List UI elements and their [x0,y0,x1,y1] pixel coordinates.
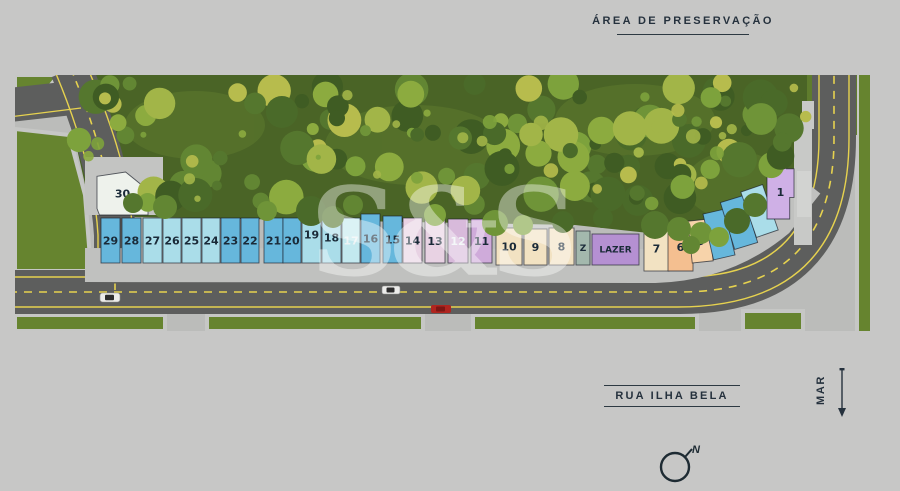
tree [727,124,737,134]
tree [343,195,363,215]
lot-1-number: 1 [777,186,785,199]
street-label: RUA ILHA BELA [592,385,752,407]
tree [682,236,700,254]
lot-19-number: 19 [304,229,319,242]
lot-27: 27 [143,218,162,263]
lot-lazer: LAZER [592,234,639,265]
tree [212,181,222,191]
sea-label: MAR [799,362,859,422]
tree [322,206,344,228]
lot-26: 26 [163,218,181,263]
lot-17: 17 [342,218,360,263]
site-plan: 3029282726252423222120191817161514131211… [15,75,870,331]
tree [613,111,647,145]
tree [587,155,606,174]
tree [563,143,578,158]
tree [483,115,497,129]
lot-21-number: 21 [266,235,281,248]
lot-12: 12 [448,219,468,263]
tree [604,153,624,173]
car-white-1 [100,293,120,302]
preservation-area-underline [617,34,749,35]
lot-26-number: 26 [164,235,180,248]
site-plan-page: { "labels": { "preservation": "ÁREA DE P… [0,0,900,491]
tree [257,201,277,221]
tree [523,177,558,212]
tree [630,186,645,201]
tree [671,104,684,117]
tree [295,94,309,108]
tree [620,167,637,184]
lot-22-number: 22 [242,235,257,248]
tree [99,92,111,104]
tree [516,75,543,102]
street-label-bottomline [604,406,740,407]
lot-10-number: 10 [501,241,517,254]
lot-9: 9 [524,229,547,265]
lot-27-number: 27 [145,235,160,248]
lot-20-number: 20 [284,235,300,248]
tree [123,77,137,91]
tree [534,116,549,131]
tree [140,132,146,138]
tree [213,151,228,166]
tree [641,211,669,239]
tree [360,125,371,136]
tree [307,144,337,174]
tree [560,171,590,201]
tree [244,174,260,190]
lot-28: 28 [122,218,141,263]
tree [572,90,587,105]
sea-arrow-icon [833,364,851,422]
lot-15-number: 15 [385,234,400,247]
tree [773,133,792,152]
tree [513,215,533,235]
tree [671,175,695,199]
tree [296,196,326,226]
tree [790,84,799,93]
tree [477,136,488,147]
tree [424,110,431,117]
lot-9-number: 9 [532,241,540,254]
tree [342,90,352,100]
tree [184,173,195,184]
tree [110,114,127,131]
lot-20: 20 [283,218,301,263]
lot-29-number: 29 [103,235,118,248]
sea-label-text: MAR [815,370,827,410]
tree [701,87,722,108]
tree [588,117,616,145]
tree [411,172,423,184]
car-red [431,305,451,313]
tree [719,132,727,140]
tree [634,147,644,157]
tree [153,195,177,219]
tree [710,116,722,128]
tree [640,92,649,101]
site-plan-canvas: 3029282726252423222120191817161514131211… [15,75,870,331]
lot-11-number: 11 [474,235,489,248]
lot-21: 21 [264,218,283,263]
tree [91,137,104,150]
tree [691,116,701,126]
tree [194,196,200,202]
tree [710,146,724,160]
tree [316,155,321,160]
tree [591,177,626,212]
tree [186,155,199,168]
lot-13-number: 13 [427,235,442,248]
lot-17-number: 17 [343,235,358,248]
lot-25-number: 25 [184,235,199,248]
tree [83,151,94,162]
svg-text:N: N [692,444,701,456]
tree [504,164,514,174]
tree [743,193,767,217]
tree [392,120,400,128]
tree [438,168,455,185]
lot-16-number: 16 [363,233,379,246]
lot-24-number: 24 [203,235,219,248]
preservation-area-label: ÁREA DE PRESERVAÇÃO [560,15,806,35]
tree [123,193,143,213]
lot-z: Z [576,231,590,265]
tree [722,142,757,177]
tree [67,128,91,152]
tree [544,163,559,178]
tree [346,156,366,176]
tree [397,81,424,108]
tree [425,125,441,141]
lot-lazer-number: LAZER [599,246,631,256]
lot-7-number: 7 [653,243,661,256]
tree [720,96,731,107]
lot-z-number: Z [580,244,587,254]
tree [239,130,247,138]
tree [457,132,468,143]
tree [592,184,602,194]
lot-24: 24 [202,218,220,263]
tree [645,197,658,210]
tree [552,211,574,233]
compass-icon: N [648,438,712,490]
tree [800,111,811,122]
tree [266,96,298,128]
lot-23-number: 23 [223,235,238,248]
tree [593,208,613,228]
lot-15: 15 [383,216,402,263]
lot-8-number: 8 [558,241,566,254]
preservation-area-text: ÁREA DE PRESERVAÇÃO [560,15,806,27]
lot-16: 16 [361,214,380,263]
lot-14-number: 14 [405,235,421,248]
tree [424,204,446,226]
tree [329,110,345,126]
lot-12-number: 12 [450,235,465,248]
tree [144,88,175,119]
tree [695,177,708,190]
street-label-text: RUA ILHA BELA [592,386,752,406]
lot-14: 14 [403,218,422,263]
lot-28-number: 28 [124,235,139,248]
lot-23: 23 [221,218,240,263]
lot-22: 22 [241,218,259,263]
lot-8: 8 [549,228,574,265]
lot-29: 29 [101,218,120,263]
tree [373,171,381,179]
tree [651,121,662,132]
lot-25: 25 [182,218,201,263]
tree [745,103,777,135]
tree [307,123,319,135]
tree [686,129,701,144]
tree [244,93,266,115]
tree [410,128,424,142]
car-white-2 [382,286,400,294]
tree [482,210,508,236]
tree [451,176,481,206]
lot-18-number: 18 [324,232,339,245]
tree [228,83,247,102]
tree [178,178,212,212]
tree [701,160,720,179]
tree [709,227,729,247]
